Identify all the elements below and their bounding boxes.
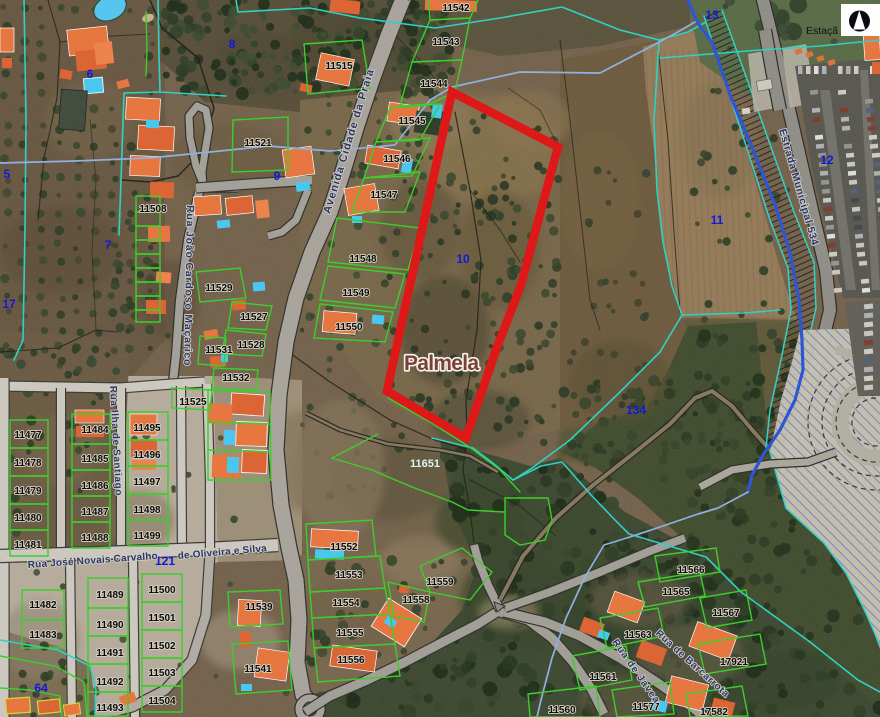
svg-text:8: 8 (229, 37, 236, 51)
svg-text:6: 6 (87, 67, 94, 81)
svg-text:11554: 11554 (332, 598, 360, 609)
svg-text:11478: 11478 (14, 458, 42, 469)
svg-text:11486: 11486 (81, 481, 109, 492)
svg-text:11499: 11499 (133, 531, 161, 542)
svg-text:11483: 11483 (29, 630, 57, 641)
svg-text:11567: 11567 (712, 608, 740, 619)
svg-text:11502: 11502 (148, 641, 176, 652)
svg-text:11556: 11556 (337, 655, 365, 666)
svg-text:134: 134 (626, 403, 646, 417)
svg-text:11515: 11515 (325, 61, 353, 72)
svg-text:11484: 11484 (81, 425, 109, 436)
svg-text:11503: 11503 (148, 668, 176, 679)
svg-text:11490: 11490 (96, 620, 124, 631)
svg-text:Estaçã: Estaçã (806, 25, 838, 37)
svg-text:17582: 17582 (700, 707, 728, 717)
svg-text:17921: 17921 (720, 657, 748, 668)
svg-text:12: 12 (820, 153, 834, 167)
svg-text:11504: 11504 (148, 696, 176, 707)
svg-text:11488: 11488 (81, 533, 109, 544)
svg-text:17: 17 (2, 297, 16, 311)
svg-text:11527: 11527 (240, 312, 268, 323)
svg-text:11531: 11531 (205, 345, 233, 356)
svg-text:11541: 11541 (244, 664, 272, 675)
svg-text:11492: 11492 (96, 677, 124, 688)
svg-text:11532: 11532 (222, 373, 250, 384)
svg-text:11546: 11546 (383, 154, 411, 165)
svg-text:11559: 11559 (426, 577, 454, 588)
svg-text:11566: 11566 (677, 565, 705, 576)
svg-text:11528: 11528 (237, 340, 265, 351)
svg-text:11548: 11548 (349, 254, 377, 265)
svg-text:11480: 11480 (14, 513, 42, 524)
svg-text:11482: 11482 (29, 600, 57, 611)
svg-text:11544: 11544 (420, 79, 448, 90)
svg-text:11487: 11487 (81, 507, 109, 518)
svg-text:11477: 11477 (14, 430, 42, 441)
svg-text:11529: 11529 (205, 283, 233, 294)
svg-text:11500: 11500 (148, 585, 176, 596)
svg-text:11549: 11549 (342, 288, 370, 299)
svg-text:11545: 11545 (398, 116, 426, 127)
svg-text:11552: 11552 (330, 542, 358, 553)
svg-text:5: 5 (4, 167, 11, 181)
svg-text:11489: 11489 (96, 590, 124, 601)
svg-text:11542: 11542 (442, 3, 470, 14)
svg-text:11563: 11563 (624, 630, 652, 641)
svg-text:10: 10 (456, 252, 470, 266)
svg-text:11561: 11561 (589, 672, 617, 683)
svg-text:Palmela: Palmela (404, 352, 480, 375)
svg-text:11565: 11565 (662, 587, 690, 598)
svg-text:7: 7 (105, 238, 112, 252)
svg-text:11491: 11491 (96, 648, 124, 659)
svg-text:11521: 11521 (244, 138, 272, 149)
svg-text:11495: 11495 (133, 423, 161, 434)
svg-text:11508: 11508 (139, 204, 167, 215)
svg-text:11: 11 (711, 213, 724, 227)
svg-text:11479: 11479 (14, 486, 42, 497)
svg-text:11481: 11481 (14, 540, 42, 551)
svg-text:11560: 11560 (548, 705, 576, 716)
svg-text:11497: 11497 (133, 477, 161, 488)
svg-text:13: 13 (705, 8, 719, 22)
svg-text:11555: 11555 (336, 628, 364, 639)
svg-text:11651: 11651 (410, 458, 440, 470)
svg-text:11493: 11493 (96, 703, 124, 714)
svg-text:9: 9 (274, 169, 281, 183)
svg-text:11501: 11501 (148, 613, 176, 624)
svg-text:11547: 11547 (370, 190, 398, 201)
svg-text:64: 64 (34, 681, 48, 695)
svg-text:11553: 11553 (335, 570, 363, 581)
svg-text:11539: 11539 (245, 602, 273, 613)
svg-text:11550: 11550 (335, 322, 363, 333)
svg-text:11498: 11498 (133, 505, 161, 516)
svg-text:11558: 11558 (402, 595, 430, 606)
svg-text:11525: 11525 (179, 397, 207, 408)
svg-text:11543: 11543 (432, 37, 460, 48)
svg-text:11496: 11496 (133, 450, 161, 461)
svg-text:11485: 11485 (81, 454, 109, 465)
